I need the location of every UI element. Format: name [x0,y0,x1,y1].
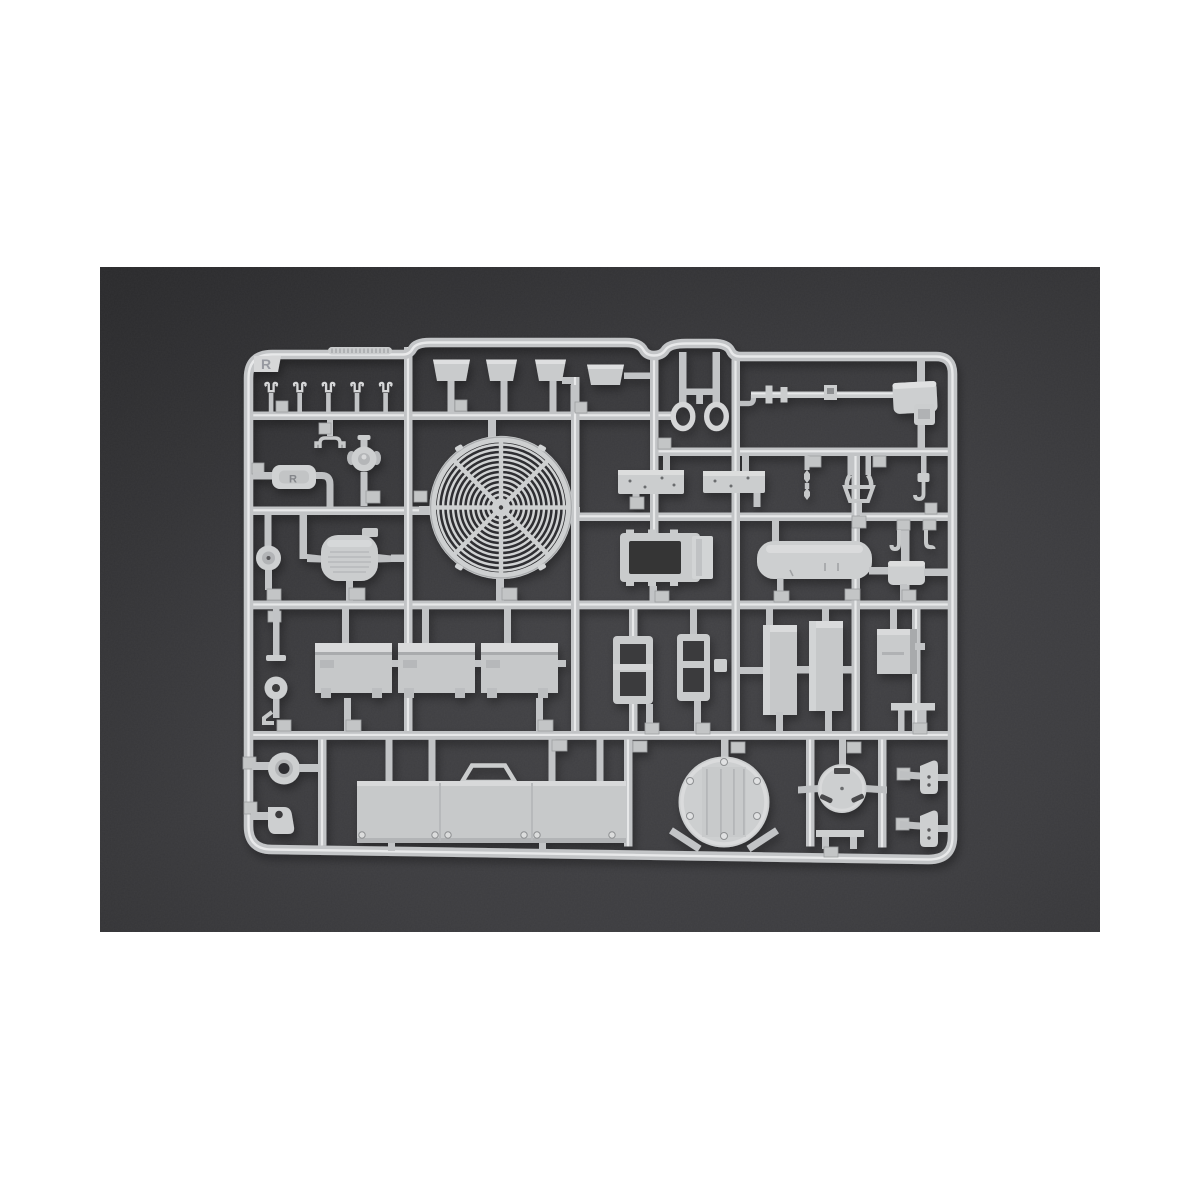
svg-text:R: R [289,474,297,486]
svg-text:R: R [261,356,271,372]
